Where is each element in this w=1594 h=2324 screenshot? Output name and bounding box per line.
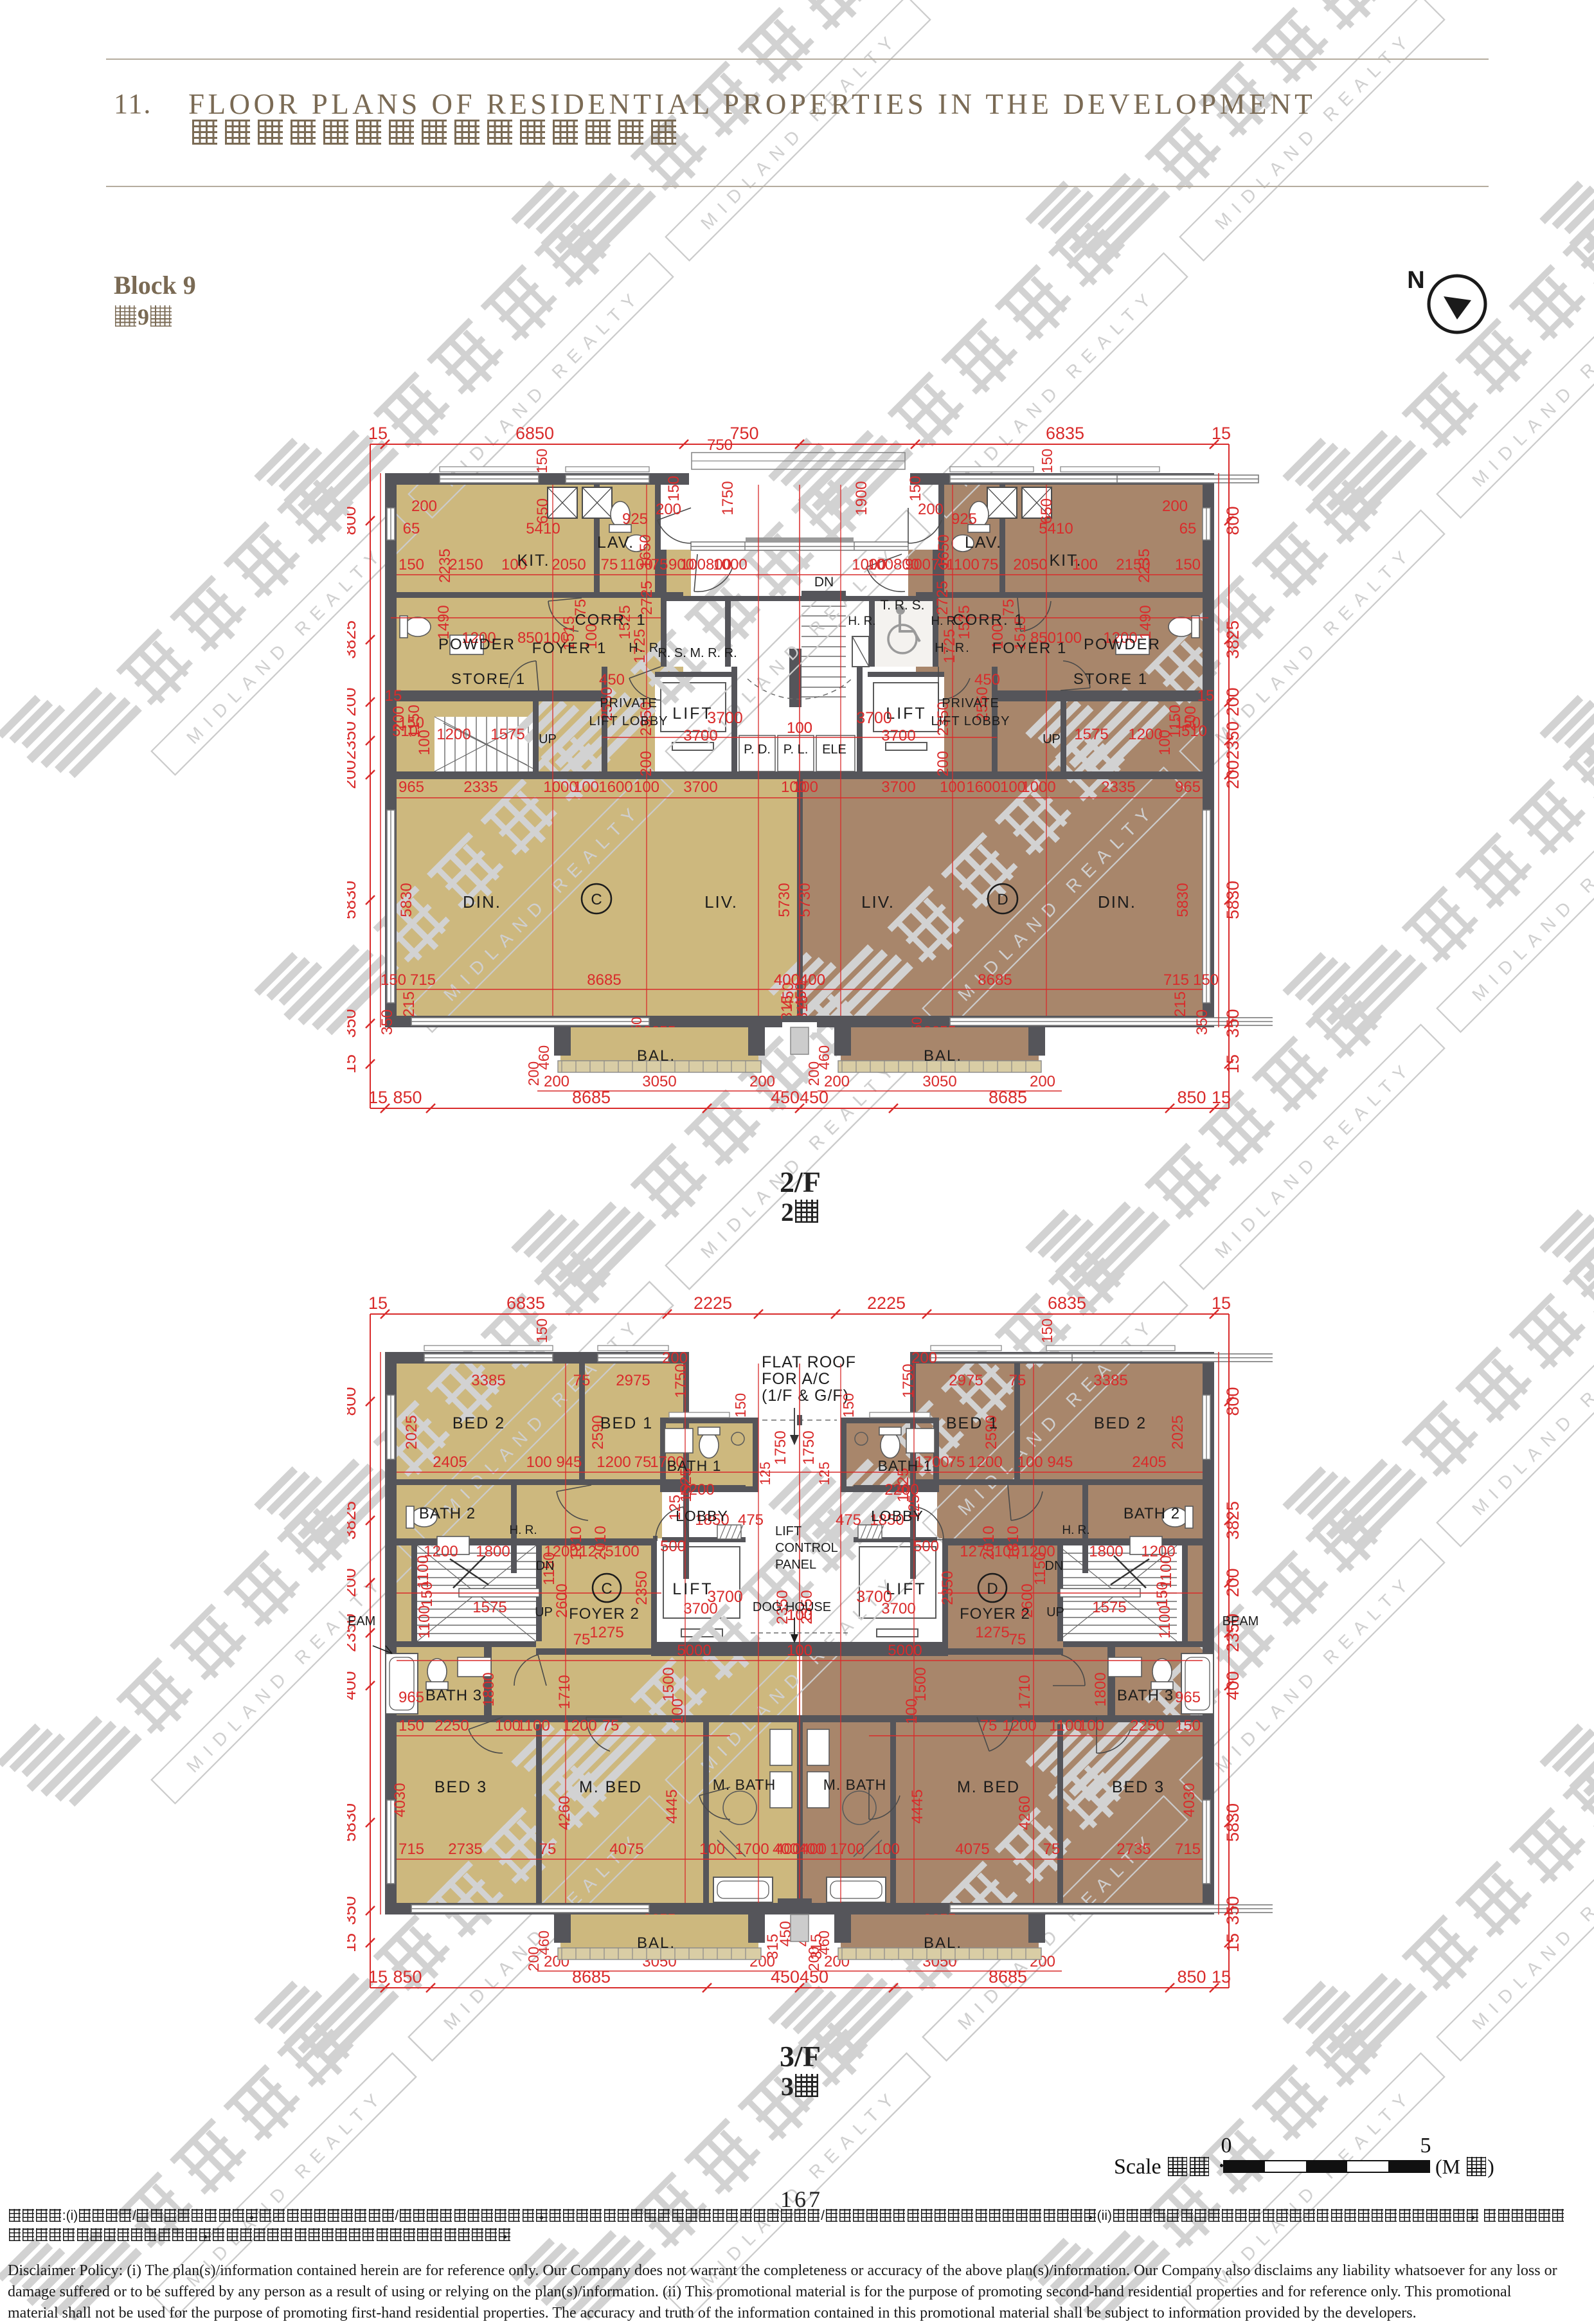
svg-text:1100: 1100 <box>416 1605 433 1639</box>
svg-text:2975: 2975 <box>616 1372 650 1389</box>
svg-text:BAL.: BAL. <box>924 1934 962 1952</box>
svg-text:3385: 3385 <box>1093 1372 1127 1389</box>
svg-text:100: 100 <box>669 1698 686 1724</box>
svg-text:715: 715 <box>1163 971 1189 989</box>
svg-text:BATH 3: BATH 3 <box>1117 1687 1174 1704</box>
svg-text:1650: 1650 <box>637 534 654 568</box>
svg-text:75: 75 <box>981 556 999 573</box>
svg-text:4445: 4445 <box>909 1789 926 1823</box>
svg-text:200: 200 <box>824 1073 850 1090</box>
svg-text:PRIVATE: PRIVATE <box>942 696 999 710</box>
svg-text:200: 200 <box>1223 760 1242 789</box>
svg-text:2350: 2350 <box>1223 721 1242 760</box>
svg-text:5830: 5830 <box>1223 1803 1242 1842</box>
svg-text:200: 200 <box>638 751 655 777</box>
svg-text:350: 350 <box>347 1896 359 1925</box>
svg-text:0: 0 <box>1221 2134 1232 2157</box>
svg-text:2735: 2735 <box>1116 1841 1151 1858</box>
svg-text:100: 100 <box>573 779 599 796</box>
svg-text:2335: 2335 <box>1101 779 1135 796</box>
svg-text:2025: 2025 <box>403 1415 420 1449</box>
svg-text:1500: 1500 <box>912 1667 929 1701</box>
svg-text:BED 2: BED 2 <box>452 1414 505 1432</box>
svg-text:125: 125 <box>757 1462 773 1486</box>
svg-text:450: 450 <box>974 671 1000 689</box>
svg-text:150: 150 <box>1175 556 1201 573</box>
svg-text:965: 965 <box>1175 1689 1201 1706</box>
svg-text:POWDER: POWDER <box>1084 636 1161 653</box>
svg-text:DIN.: DIN. <box>1098 892 1136 912</box>
svg-text:15: 15 <box>1223 1054 1242 1074</box>
svg-text:BATH 2: BATH 2 <box>1124 1505 1180 1522</box>
svg-text:15: 15 <box>368 1967 388 1986</box>
svg-text:4075: 4075 <box>609 1841 643 1858</box>
svg-text:DOG HOUSE: DOG HOUSE <box>753 1600 831 1614</box>
svg-text:100: 100 <box>940 779 965 796</box>
svg-text:BATH 1: BATH 1 <box>878 1457 933 1474</box>
svg-text:800: 800 <box>1223 506 1242 535</box>
svg-text:5730: 5730 <box>776 883 793 917</box>
svg-text:LIFT LOBBY: LIFT LOBBY <box>589 714 668 728</box>
svg-text:2150: 2150 <box>449 556 483 573</box>
svg-text:5730: 5730 <box>796 883 814 917</box>
svg-text:1800: 1800 <box>1089 1543 1123 1560</box>
svg-text:150: 150 <box>840 1393 857 1418</box>
svg-text:1650: 1650 <box>935 534 953 568</box>
svg-text:965: 965 <box>398 1689 424 1706</box>
svg-text:200: 200 <box>347 687 359 716</box>
svg-text:715: 715 <box>1175 1841 1201 1858</box>
svg-text:150: 150 <box>1175 714 1201 732</box>
svg-text:400: 400 <box>347 1671 359 1700</box>
svg-text:150: 150 <box>1175 1717 1201 1734</box>
svg-text:750: 750 <box>707 437 733 454</box>
svg-text:3700: 3700 <box>881 779 915 796</box>
svg-text:200: 200 <box>347 760 359 789</box>
svg-text:965: 965 <box>398 779 424 796</box>
svg-text:C: C <box>591 891 602 908</box>
svg-text:15: 15 <box>1212 424 1231 443</box>
svg-text:800: 800 <box>347 1387 359 1416</box>
svg-text:3050: 3050 <box>922 1073 956 1090</box>
svg-text:200: 200 <box>1223 687 1242 716</box>
svg-text:200: 200 <box>662 1349 688 1367</box>
svg-text:925: 925 <box>622 510 648 528</box>
svg-text:2235: 2235 <box>1136 548 1153 582</box>
svg-text:200: 200 <box>805 1061 822 1086</box>
svg-text:15: 15 <box>368 424 388 443</box>
svg-text:LAV.: LAV. <box>965 534 1002 552</box>
svg-text:350: 350 <box>1223 1009 1242 1038</box>
svg-text:5830: 5830 <box>347 881 359 919</box>
svg-text:75: 75 <box>573 1372 591 1389</box>
svg-text:200: 200 <box>1030 1073 1055 1090</box>
svg-text:1750: 1750 <box>800 1430 818 1464</box>
svg-text:1575: 1575 <box>1092 1599 1126 1616</box>
svg-text:850: 850 <box>393 1088 422 1107</box>
svg-text:D: D <box>997 891 1008 908</box>
svg-text:H. R.: H. R. <box>509 1524 537 1537</box>
svg-text:1100: 1100 <box>1049 1717 1082 1734</box>
svg-text:BED 2: BED 2 <box>1094 1414 1147 1432</box>
svg-text:1100: 1100 <box>1156 1605 1174 1639</box>
svg-text:LIV.: LIV. <box>704 892 738 912</box>
svg-text:1200: 1200 <box>436 726 470 743</box>
svg-text:BATH 1: BATH 1 <box>667 1457 722 1474</box>
svg-text:3700: 3700 <box>707 1588 743 1606</box>
svg-text:CORR. 1: CORR. 1 <box>953 611 1024 629</box>
svg-text:1275: 1275 <box>589 1624 623 1641</box>
svg-text:100: 100 <box>416 730 433 755</box>
svg-text:1700: 1700 <box>735 1841 769 1858</box>
svg-text:KIT.: KIT. <box>517 552 550 570</box>
svg-text:3700: 3700 <box>683 727 717 744</box>
svg-text:150: 150 <box>1193 971 1219 989</box>
svg-text:5830: 5830 <box>1174 883 1192 917</box>
svg-text:5830: 5830 <box>1223 881 1242 919</box>
svg-text:BEAM: BEAM <box>1222 1614 1259 1628</box>
svg-text:D: D <box>987 1580 998 1598</box>
svg-text:1200: 1200 <box>544 1543 578 1560</box>
svg-text:3050: 3050 <box>642 1073 676 1090</box>
svg-text:75: 75 <box>1009 1631 1026 1648</box>
svg-text:BED 1: BED 1 <box>600 1414 653 1432</box>
svg-text:STORE 1: STORE 1 <box>451 671 526 688</box>
svg-text:75: 75 <box>980 1717 998 1734</box>
svg-text:200: 200 <box>1162 498 1188 515</box>
svg-text:H. R.: H. R. <box>848 615 875 628</box>
svg-text:PRIVATE: PRIVATE <box>600 696 658 710</box>
svg-text:75: 75 <box>573 1631 591 1648</box>
svg-text:1750: 1750 <box>672 1364 690 1398</box>
svg-text:2235: 2235 <box>436 548 454 582</box>
svg-text:4445: 4445 <box>663 1789 681 1823</box>
svg-text:3825: 3825 <box>1223 1501 1242 1540</box>
svg-text:1200: 1200 <box>1002 1717 1036 1734</box>
svg-text:800: 800 <box>1223 1387 1242 1416</box>
svg-text:DN: DN <box>536 1559 555 1573</box>
svg-text:100: 100 <box>787 1642 812 1659</box>
svg-text:4030: 4030 <box>391 1783 409 1817</box>
svg-text:LIV.: LIV. <box>861 892 895 912</box>
svg-text:15: 15 <box>1197 687 1215 705</box>
svg-text:3700: 3700 <box>856 1588 892 1606</box>
svg-text:150: 150 <box>533 1319 550 1343</box>
svg-text:2725: 2725 <box>638 581 656 615</box>
svg-text:UP: UP <box>535 1605 553 1619</box>
svg-text:100: 100 <box>787 719 812 737</box>
svg-text:200: 200 <box>749 1073 775 1090</box>
svg-text:100: 100 <box>903 1698 920 1724</box>
svg-text:1100: 1100 <box>517 1717 550 1734</box>
svg-text:2975: 2975 <box>949 1372 983 1389</box>
svg-text:100: 100 <box>634 779 659 796</box>
svg-text:LAV.: LAV. <box>597 534 634 552</box>
svg-text:100: 100 <box>1079 1717 1104 1734</box>
svg-text:65: 65 <box>1179 520 1197 537</box>
svg-text:POWDER: POWDER <box>438 636 515 653</box>
svg-text:200: 200 <box>918 501 944 518</box>
svg-text:4075: 4075 <box>955 1841 989 1858</box>
svg-text:3700: 3700 <box>683 779 717 796</box>
svg-text:P. D.: P. D. <box>744 743 771 757</box>
svg-text:350: 350 <box>379 1009 396 1035</box>
svg-text:UP: UP <box>539 732 557 746</box>
svg-text:5000: 5000 <box>677 1642 711 1659</box>
svg-text:150: 150 <box>381 971 406 989</box>
svg-text:500: 500 <box>660 1538 686 1555</box>
svg-text:200: 200 <box>935 751 952 777</box>
svg-text:2735: 2735 <box>448 1841 482 1858</box>
svg-text:1800: 1800 <box>480 1672 497 1706</box>
svg-text:3825: 3825 <box>347 1501 359 1540</box>
svg-text:1000: 1000 <box>1021 779 1055 796</box>
svg-text:2025: 2025 <box>1169 1415 1187 1449</box>
svg-text:H. R.: H. R. <box>1062 1524 1089 1537</box>
svg-text:850: 850 <box>393 1967 422 1986</box>
svg-text:4260: 4260 <box>1016 1796 1034 1830</box>
svg-text:3825: 3825 <box>1223 620 1242 659</box>
svg-text:75: 75 <box>1009 1372 1026 1389</box>
svg-text:75: 75 <box>948 1454 965 1471</box>
svg-text:15: 15 <box>385 687 402 705</box>
svg-text:1800: 1800 <box>476 1543 510 1560</box>
svg-text:FOR A/C: FOR A/C <box>762 1370 830 1388</box>
svg-text:8685: 8685 <box>978 971 1012 989</box>
svg-text:1490: 1490 <box>435 605 452 639</box>
svg-text:2250: 2250 <box>1130 1717 1164 1734</box>
svg-text:BAL.: BAL. <box>924 1047 962 1065</box>
svg-text:1700: 1700 <box>830 1841 864 1858</box>
svg-text:850: 850 <box>1177 1967 1206 1986</box>
svg-text:1000: 1000 <box>543 779 577 796</box>
svg-text:2725: 2725 <box>934 581 951 615</box>
svg-text:2250: 2250 <box>434 1717 469 1734</box>
svg-text:UP: UP <box>1043 732 1061 746</box>
svg-text:15: 15 <box>1223 1933 1242 1952</box>
svg-text:6835: 6835 <box>1046 424 1084 443</box>
svg-text:150: 150 <box>665 476 683 501</box>
svg-text:1900: 1900 <box>853 481 870 515</box>
svg-text:5: 5 <box>1420 2134 1431 2157</box>
svg-text:150: 150 <box>907 476 924 501</box>
svg-text:150: 150 <box>1039 449 1055 473</box>
svg-text:3825: 3825 <box>347 620 359 659</box>
svg-text:215: 215 <box>400 991 418 1017</box>
svg-text:2350: 2350 <box>939 1571 956 1605</box>
svg-text:C: C <box>601 1580 612 1598</box>
svg-text:H. R.: H. R. <box>931 615 958 628</box>
svg-text:M. BATH: M. BATH <box>823 1776 887 1793</box>
svg-text:715: 715 <box>398 1841 424 1858</box>
svg-text:6850: 6850 <box>515 424 554 443</box>
svg-text:1000: 1000 <box>713 556 747 573</box>
svg-text:BED 3: BED 3 <box>434 1778 487 1796</box>
svg-text:750: 750 <box>730 424 758 443</box>
svg-text:350: 350 <box>1194 1009 1211 1035</box>
svg-text:150: 150 <box>732 1393 749 1418</box>
svg-text:1500: 1500 <box>660 1667 677 1701</box>
svg-text:3700: 3700 <box>881 727 915 744</box>
svg-text:PANEL: PANEL <box>775 1558 816 1572</box>
svg-text:1710: 1710 <box>1016 1675 1034 1709</box>
svg-text:5830: 5830 <box>398 883 415 917</box>
svg-text:15: 15 <box>1212 1967 1231 1986</box>
svg-text:850: 850 <box>1177 1088 1206 1107</box>
svg-text:8685: 8685 <box>587 971 621 989</box>
svg-text:LOBBY: LOBBY <box>676 1508 728 1524</box>
svg-text:2225: 2225 <box>694 1293 732 1313</box>
svg-text:1275: 1275 <box>975 1624 1009 1641</box>
svg-text:FLAT ROOF: FLAT ROOF <box>762 1353 856 1371</box>
svg-text:2050: 2050 <box>551 556 586 573</box>
svg-text:150: 150 <box>398 1717 424 1734</box>
svg-text:1750: 1750 <box>719 481 737 515</box>
svg-text:FOYER 2: FOYER 2 <box>569 1605 640 1623</box>
svg-text:BAL.: BAL. <box>637 1934 676 1952</box>
svg-text:5830: 5830 <box>347 1803 359 1842</box>
svg-text:400: 400 <box>1223 1671 1242 1700</box>
svg-text:2405: 2405 <box>433 1454 467 1471</box>
svg-text:8685: 8685 <box>989 1967 1027 1986</box>
svg-text:75: 75 <box>539 1841 557 1858</box>
svg-text:M. BATH: M. BATH <box>713 1776 776 1793</box>
svg-text:4260: 4260 <box>556 1796 573 1830</box>
svg-text:650: 650 <box>534 498 551 524</box>
svg-text:350: 350 <box>347 1009 359 1038</box>
svg-text:965: 965 <box>1175 779 1201 796</box>
svg-text:15: 15 <box>1212 1088 1231 1107</box>
svg-text:BED 3: BED 3 <box>1112 1778 1165 1796</box>
svg-text:150: 150 <box>398 714 424 732</box>
svg-text:FOYER 1: FOYER 1 <box>992 640 1068 657</box>
svg-text:1275100: 1275100 <box>960 1543 1019 1560</box>
svg-text:215: 215 <box>1172 991 1189 1017</box>
svg-text:715: 715 <box>410 971 436 989</box>
svg-text:T. R. S.: T. R. S. <box>881 598 925 613</box>
svg-text:150: 150 <box>533 449 550 473</box>
svg-text:1275100: 1275100 <box>579 1543 639 1560</box>
svg-text:1750: 1750 <box>900 1364 917 1398</box>
svg-text:2050: 2050 <box>1013 556 1047 573</box>
svg-text:CONTROL: CONTROL <box>775 1541 838 1555</box>
svg-text:475: 475 <box>836 1511 861 1529</box>
svg-text:N: N <box>1407 267 1424 294</box>
svg-text:DN: DN <box>814 575 834 590</box>
svg-text:200: 200 <box>1223 1568 1242 1597</box>
svg-text:75: 75 <box>1043 1841 1061 1858</box>
svg-text:2600: 2600 <box>553 1583 571 1617</box>
svg-text:BAL.: BAL. <box>637 1047 676 1065</box>
svg-text:75: 75 <box>634 1454 652 1471</box>
svg-text:3385: 3385 <box>471 1372 505 1389</box>
svg-text:1575: 1575 <box>1074 726 1108 743</box>
svg-text:65: 65 <box>403 520 420 537</box>
svg-text:75: 75 <box>601 556 618 573</box>
svg-text:1000: 1000 <box>852 556 886 573</box>
svg-text:350: 350 <box>1223 1896 1242 1925</box>
svg-text:200: 200 <box>525 1947 542 1971</box>
svg-text:1490: 1490 <box>1137 605 1154 639</box>
svg-text:6835: 6835 <box>506 1293 545 1313</box>
svg-text:1600: 1600 <box>966 779 1000 796</box>
svg-text:LIFT LOBBY: LIFT LOBBY <box>931 714 1010 728</box>
svg-text:100: 100 <box>874 1841 900 1858</box>
svg-text:M. BED: M. BED <box>957 1778 1020 1796</box>
svg-text:2405: 2405 <box>1132 1454 1166 1471</box>
svg-text:1800: 1800 <box>1092 1672 1109 1706</box>
svg-text:8685: 8685 <box>572 1967 611 1986</box>
svg-text:H. R.: H. R. <box>935 641 971 655</box>
svg-text:1600: 1600 <box>598 779 632 796</box>
svg-text:450: 450 <box>599 671 625 689</box>
svg-text:500: 500 <box>913 1538 939 1555</box>
svg-text:1575: 1575 <box>490 726 524 743</box>
svg-text:200: 200 <box>525 1061 542 1086</box>
svg-text:LIFT: LIFT <box>775 1524 801 1538</box>
svg-text:100 945: 100 945 <box>526 1454 582 1471</box>
svg-text:450: 450 <box>780 982 797 1008</box>
svg-text:BEAM: BEAM <box>347 1614 375 1628</box>
svg-text:2225: 2225 <box>867 1293 906 1313</box>
svg-text:800: 800 <box>347 506 359 535</box>
svg-text:200: 200 <box>911 1349 937 1367</box>
svg-text:5000: 5000 <box>888 1642 922 1659</box>
svg-text:1710: 1710 <box>556 1675 573 1709</box>
svg-text:650: 650 <box>1038 498 1055 524</box>
svg-text:1750: 1750 <box>772 1430 789 1464</box>
svg-text:DN: DN <box>1045 1559 1064 1573</box>
svg-text:BED 1: BED 1 <box>946 1414 999 1432</box>
svg-text:(1/F & G/F): (1/F & G/F) <box>762 1387 849 1405</box>
svg-text:1200: 1200 <box>968 1454 1002 1471</box>
svg-text:BATH 3: BATH 3 <box>425 1687 482 1704</box>
svg-text:3700: 3700 <box>856 709 892 727</box>
svg-text:M. BED: M. BED <box>579 1778 642 1796</box>
svg-text:P. L.: P. L. <box>784 743 809 757</box>
svg-text:150: 150 <box>418 1581 436 1607</box>
svg-text:KIT.: KIT. <box>1049 552 1082 570</box>
svg-text:475: 475 <box>738 1511 764 1529</box>
svg-text:15: 15 <box>347 1054 359 1074</box>
svg-text:1200: 1200 <box>1128 726 1162 743</box>
svg-text:2350: 2350 <box>633 1571 650 1605</box>
svg-text:100: 100 <box>1000 779 1026 796</box>
svg-text:125: 125 <box>816 1462 832 1486</box>
svg-text:925: 925 <box>951 510 977 528</box>
svg-text:6835: 6835 <box>1048 1293 1086 1313</box>
svg-text:150: 150 <box>398 556 424 573</box>
svg-text:3700: 3700 <box>707 709 743 727</box>
svg-text:15: 15 <box>368 1293 388 1313</box>
svg-text:150: 150 <box>1154 1581 1171 1607</box>
svg-text:FOYER 1: FOYER 1 <box>532 640 607 657</box>
svg-text:LOBBY: LOBBY <box>871 1508 924 1524</box>
svg-text:400400: 400400 <box>775 1841 827 1858</box>
svg-text:1200: 1200 <box>596 1454 631 1471</box>
svg-text:FOYER 2: FOYER 2 <box>960 1605 1030 1623</box>
svg-text:4030: 4030 <box>1181 1783 1198 1817</box>
svg-text:15: 15 <box>347 1933 359 1952</box>
svg-text:100: 100 <box>793 779 818 796</box>
svg-text:100: 100 <box>699 1841 725 1858</box>
svg-text:15: 15 <box>1212 1293 1231 1313</box>
svg-text:150: 150 <box>1039 1319 1055 1343</box>
svg-text:CORR. 1: CORR. 1 <box>575 611 646 629</box>
svg-text:200: 200 <box>656 501 681 518</box>
svg-text:15: 15 <box>368 1088 388 1107</box>
svg-text:2350: 2350 <box>347 721 359 760</box>
